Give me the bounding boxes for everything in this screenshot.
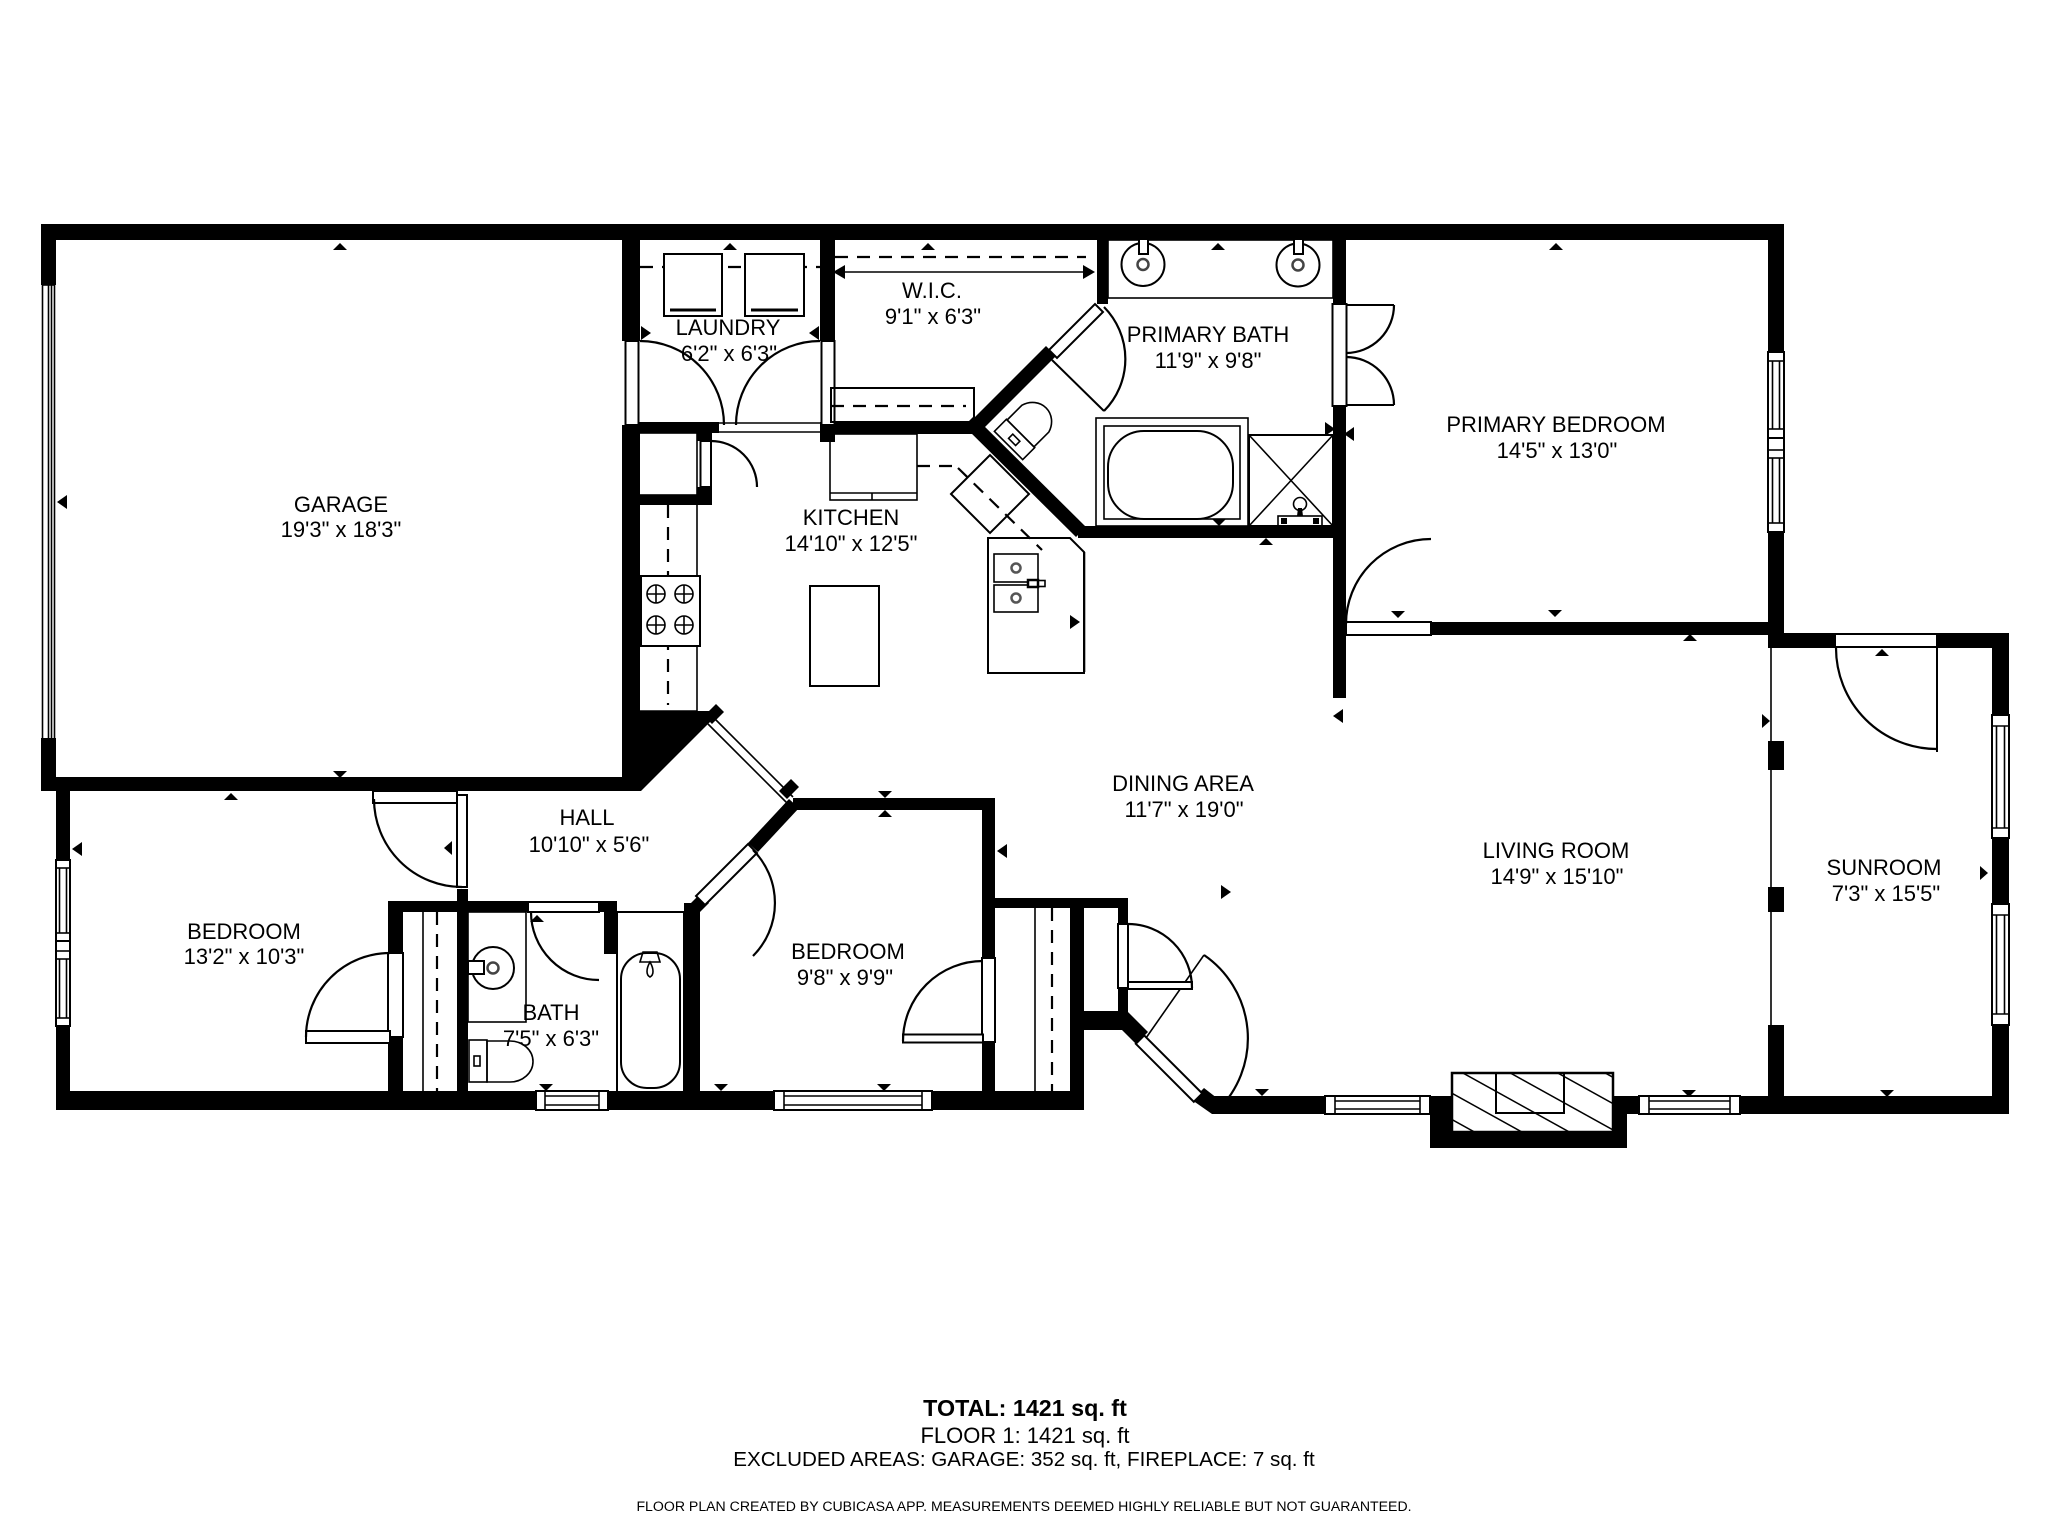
svg-text:BEDROOM: BEDROOM [187, 919, 301, 944]
svg-text:HALL: HALL [559, 805, 614, 830]
svg-text:PRIMARY BATH: PRIMARY BATH [1127, 322, 1290, 347]
svg-text:EXCLUDED AREAS: GARAGE: 352 sq: EXCLUDED AREAS: GARAGE: 352 sq. ft, FIRE… [733, 1448, 1315, 1471]
svg-text:14'9" x 15'10": 14'9" x 15'10" [1491, 864, 1624, 889]
svg-text:14'10" x 12'5": 14'10" x 12'5" [785, 531, 918, 556]
svg-text:SUNROOM: SUNROOM [1827, 855, 1942, 880]
svg-text:GARAGE: GARAGE [294, 492, 388, 517]
svg-text:13'2" x 10'3": 13'2" x 10'3" [184, 944, 305, 969]
svg-text:9'8" x 9'9": 9'8" x 9'9" [797, 965, 893, 990]
svg-text:TOTAL: 1421 sq. ft: TOTAL: 1421 sq. ft [923, 1395, 1127, 1421]
svg-text:FLOOR PLAN CREATED BY CUBICASA: FLOOR PLAN CREATED BY CUBICASA APP. MEAS… [636, 1498, 1411, 1514]
svg-text:19'3" x 18'3": 19'3" x 18'3" [281, 517, 402, 542]
svg-text:6'2" x 6'3": 6'2" x 6'3" [681, 341, 777, 366]
svg-text:10'10" x 5'6": 10'10" x 5'6" [529, 832, 650, 857]
svg-text:LAUNDRY: LAUNDRY [676, 315, 781, 340]
svg-text:11'9" x 9'8": 11'9" x 9'8" [1155, 348, 1262, 373]
svg-text:14'5" x 13'0": 14'5" x 13'0" [1497, 438, 1618, 463]
svg-text:DINING AREA: DINING AREA [1112, 771, 1254, 796]
svg-text:9'1" x 6'3": 9'1" x 6'3" [885, 304, 981, 329]
svg-text:PRIMARY BEDROOM: PRIMARY BEDROOM [1446, 412, 1665, 437]
svg-text:7'5" x 6'3": 7'5" x 6'3" [503, 1026, 599, 1051]
svg-text:W.I.C.: W.I.C. [902, 278, 962, 303]
svg-text:KITCHEN: KITCHEN [803, 505, 900, 530]
svg-text:7'3" x 15'5": 7'3" x 15'5" [1832, 881, 1940, 906]
svg-text:BATH: BATH [522, 1000, 579, 1025]
svg-text:11'7" x 19'0": 11'7" x 19'0" [1124, 797, 1243, 822]
svg-text:LIVING ROOM: LIVING ROOM [1483, 838, 1630, 863]
svg-text:BEDROOM: BEDROOM [791, 939, 905, 964]
svg-text:FLOOR 1: 1421 sq. ft: FLOOR 1: 1421 sq. ft [920, 1423, 1129, 1448]
